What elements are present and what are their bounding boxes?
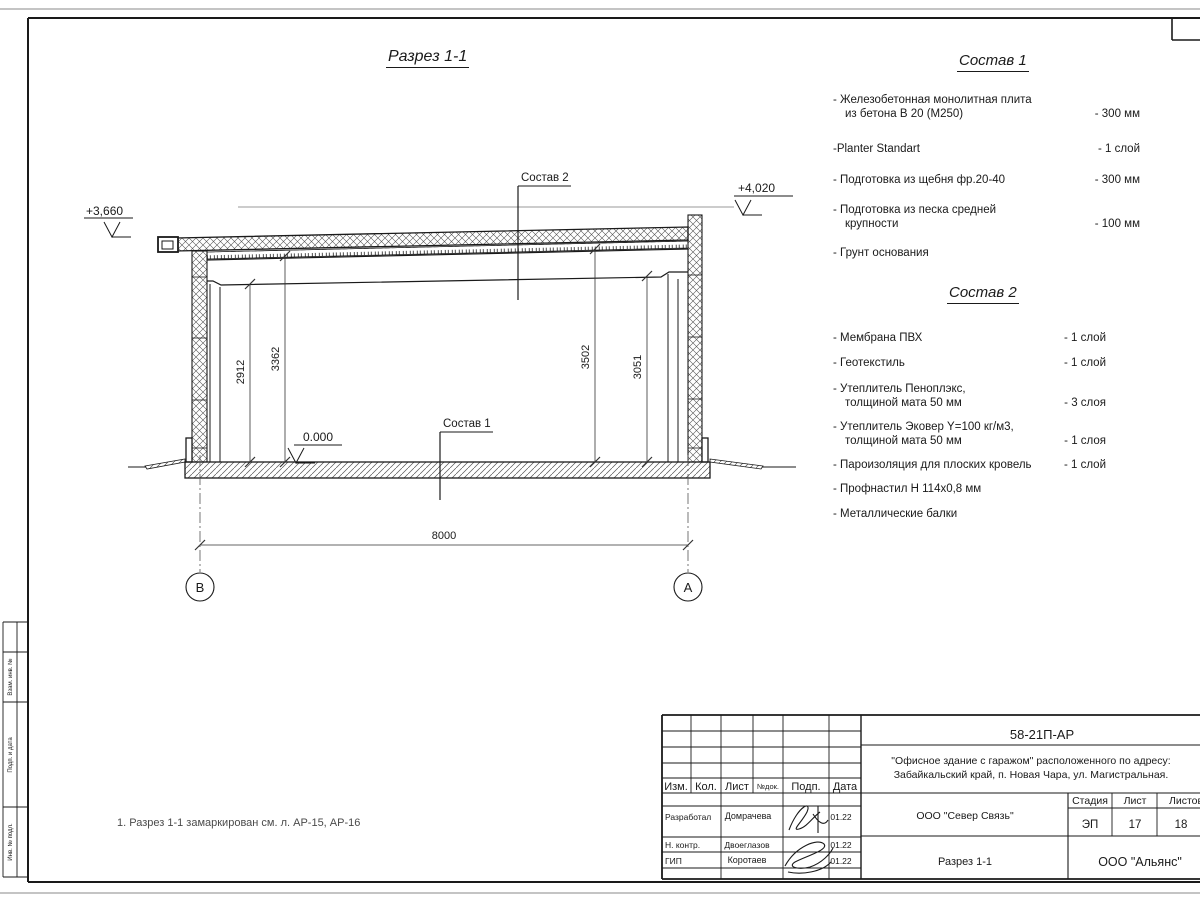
svg-text:17: 17 xyxy=(1129,819,1142,831)
left-wall xyxy=(186,251,207,462)
svg-text:3502: 3502 xyxy=(580,345,592,369)
side-stamp: Взам. инв. № Подп. и дата Инв. № подл. xyxy=(3,622,28,877)
svg-text:Кол.: Кол. xyxy=(695,781,717,793)
signatures xyxy=(785,806,833,873)
dimension-2912: 2912 xyxy=(235,279,255,467)
drawing-title: Разрез 1-1 xyxy=(386,48,469,66)
svg-text:Подп.: Подп. xyxy=(791,781,820,793)
format-corner-box xyxy=(1172,18,1200,40)
elevation-mark-zero: 0.000 xyxy=(288,430,342,463)
leader-sostav1: Состав 1 xyxy=(440,418,493,500)
stage-sheet-cells: Стадия Лист Листов ЭП 17 18 xyxy=(1072,795,1200,831)
composition-1-heading: Состав 1 xyxy=(957,52,1029,69)
composition-item: - Утеплитель Пеноплэкс,толщиной мата 50 … xyxy=(833,382,1106,410)
svg-text:+3,660: +3,660 xyxy=(86,204,123,218)
drawing-sheet: Взам. инв. № Подп. и дата Инв. № подл. xyxy=(0,0,1200,900)
svg-text:Состав 1: Состав 1 xyxy=(443,418,491,430)
svg-text:А: А xyxy=(684,580,693,595)
svg-text:Состав 2: Состав 2 xyxy=(521,172,569,184)
svg-text:Дата: Дата xyxy=(833,781,858,793)
role: Разработал xyxy=(665,812,711,822)
svg-text:18: 18 xyxy=(1175,819,1188,831)
project-line2: Забайкальский край, п. Новая Чара, ул. М… xyxy=(894,769,1169,781)
name: Двоеглазов xyxy=(724,840,770,850)
roof-slab xyxy=(158,227,688,285)
composition-item: - Металлические балки xyxy=(833,507,1106,521)
signature-rows: Разработал Домрачева 01.22 Н. контр. Дво… xyxy=(665,811,852,866)
signature-scribble xyxy=(785,842,833,873)
side-stamp-label: Инв. № подл. xyxy=(7,823,14,861)
date: 01.22 xyxy=(830,856,852,866)
composition-item: - Утеплитель Эковер Y=100 кг/м3,толщиной… xyxy=(833,420,1106,448)
side-stamp-label: Взам. инв. № xyxy=(7,658,14,695)
side-stamp-label: Подп. и дата xyxy=(8,737,14,773)
composition-item: -Planter Standart - 1 слой xyxy=(833,142,1140,156)
dimension-3051: 3051 xyxy=(632,271,652,467)
left-apron xyxy=(145,459,185,469)
date: 01.22 xyxy=(830,812,852,822)
elevation-mark-right: +4,020 xyxy=(734,181,793,215)
svg-text:2912: 2912 xyxy=(235,360,247,384)
elevation-mark-left: +3,660 xyxy=(84,204,133,237)
svg-text:0.000: 0.000 xyxy=(303,430,333,444)
svg-text:8000: 8000 xyxy=(432,530,456,542)
role: ГИП xyxy=(665,856,682,866)
composition-item: - Подготовка из щебня фр.20-40 - 300 мм xyxy=(833,173,1140,187)
svg-text:Изм.: Изм. xyxy=(664,781,688,793)
name: Домрачева xyxy=(725,811,772,821)
svg-text:3362: 3362 xyxy=(270,347,282,371)
svg-text:В: В xyxy=(196,580,205,595)
section-drawing: +3,660 +4,020 0.000 Состав 2 Состав 1 xyxy=(84,172,796,601)
sheet-title: Разрез 1-1 xyxy=(938,856,992,868)
dimension-8000: 8000 xyxy=(195,530,693,550)
beam-bottom-chord xyxy=(207,272,688,285)
svg-text:Лист: Лист xyxy=(1124,795,1147,807)
composition-2-heading: Состав 2 xyxy=(947,284,1019,301)
right-wall xyxy=(688,215,708,462)
project-line1: "Офисное здание с гаражом" расположенног… xyxy=(891,755,1170,767)
axis-bubble-b: В xyxy=(186,573,214,601)
doc-number: 58-21П-АР xyxy=(1010,727,1074,742)
svg-text:№док.: №док. xyxy=(757,782,779,791)
org: ООО "Альянс" xyxy=(1098,855,1182,869)
composition-item: - Мембрана ПВХ - 1 слой xyxy=(833,331,1106,345)
date: 01.22 xyxy=(830,840,852,850)
signature-scribble xyxy=(789,806,828,833)
left-plinth xyxy=(186,438,192,462)
axis-bubble-a: А xyxy=(674,573,702,601)
svg-text:Листов: Листов xyxy=(1169,795,1200,807)
roof-edge-channel xyxy=(158,237,178,252)
title-block: 58-21П-АР "Офисное здание с гаражом" рас… xyxy=(662,715,1200,879)
right-apron xyxy=(710,459,763,469)
svg-text:3051: 3051 xyxy=(632,355,644,379)
floor-slab xyxy=(128,459,796,478)
composition-item: - Железобетонная монолитная плитаиз бето… xyxy=(833,93,1140,121)
dimension-3502: 3502 xyxy=(580,244,600,467)
right-plinth xyxy=(702,438,708,462)
svg-text:+4,020: +4,020 xyxy=(738,181,775,195)
svg-text:Стадия: Стадия xyxy=(1072,795,1108,807)
composition-item: - Подготовка из песка среднейкрупности -… xyxy=(833,203,1140,231)
composition-item: - Пароизоляция для плоских кровель - 1 с… xyxy=(833,458,1106,472)
company: ООО "Север Связь" xyxy=(916,810,1014,822)
svg-text:ЭП: ЭП xyxy=(1082,819,1099,831)
composition-item: - Профнастил Н 114х0,8 мм xyxy=(833,482,1106,496)
role: Н. контр. xyxy=(665,840,700,850)
composition-item: - Грунт основания xyxy=(833,246,1140,260)
sheet-note: 1. Разрез 1-1 замаркирован см. л. АР-15,… xyxy=(117,817,360,829)
svg-text:Лист: Лист xyxy=(725,781,749,793)
name: Коротаев xyxy=(728,855,767,865)
composition-item: - Геотекстиль - 1 слой xyxy=(833,356,1106,370)
